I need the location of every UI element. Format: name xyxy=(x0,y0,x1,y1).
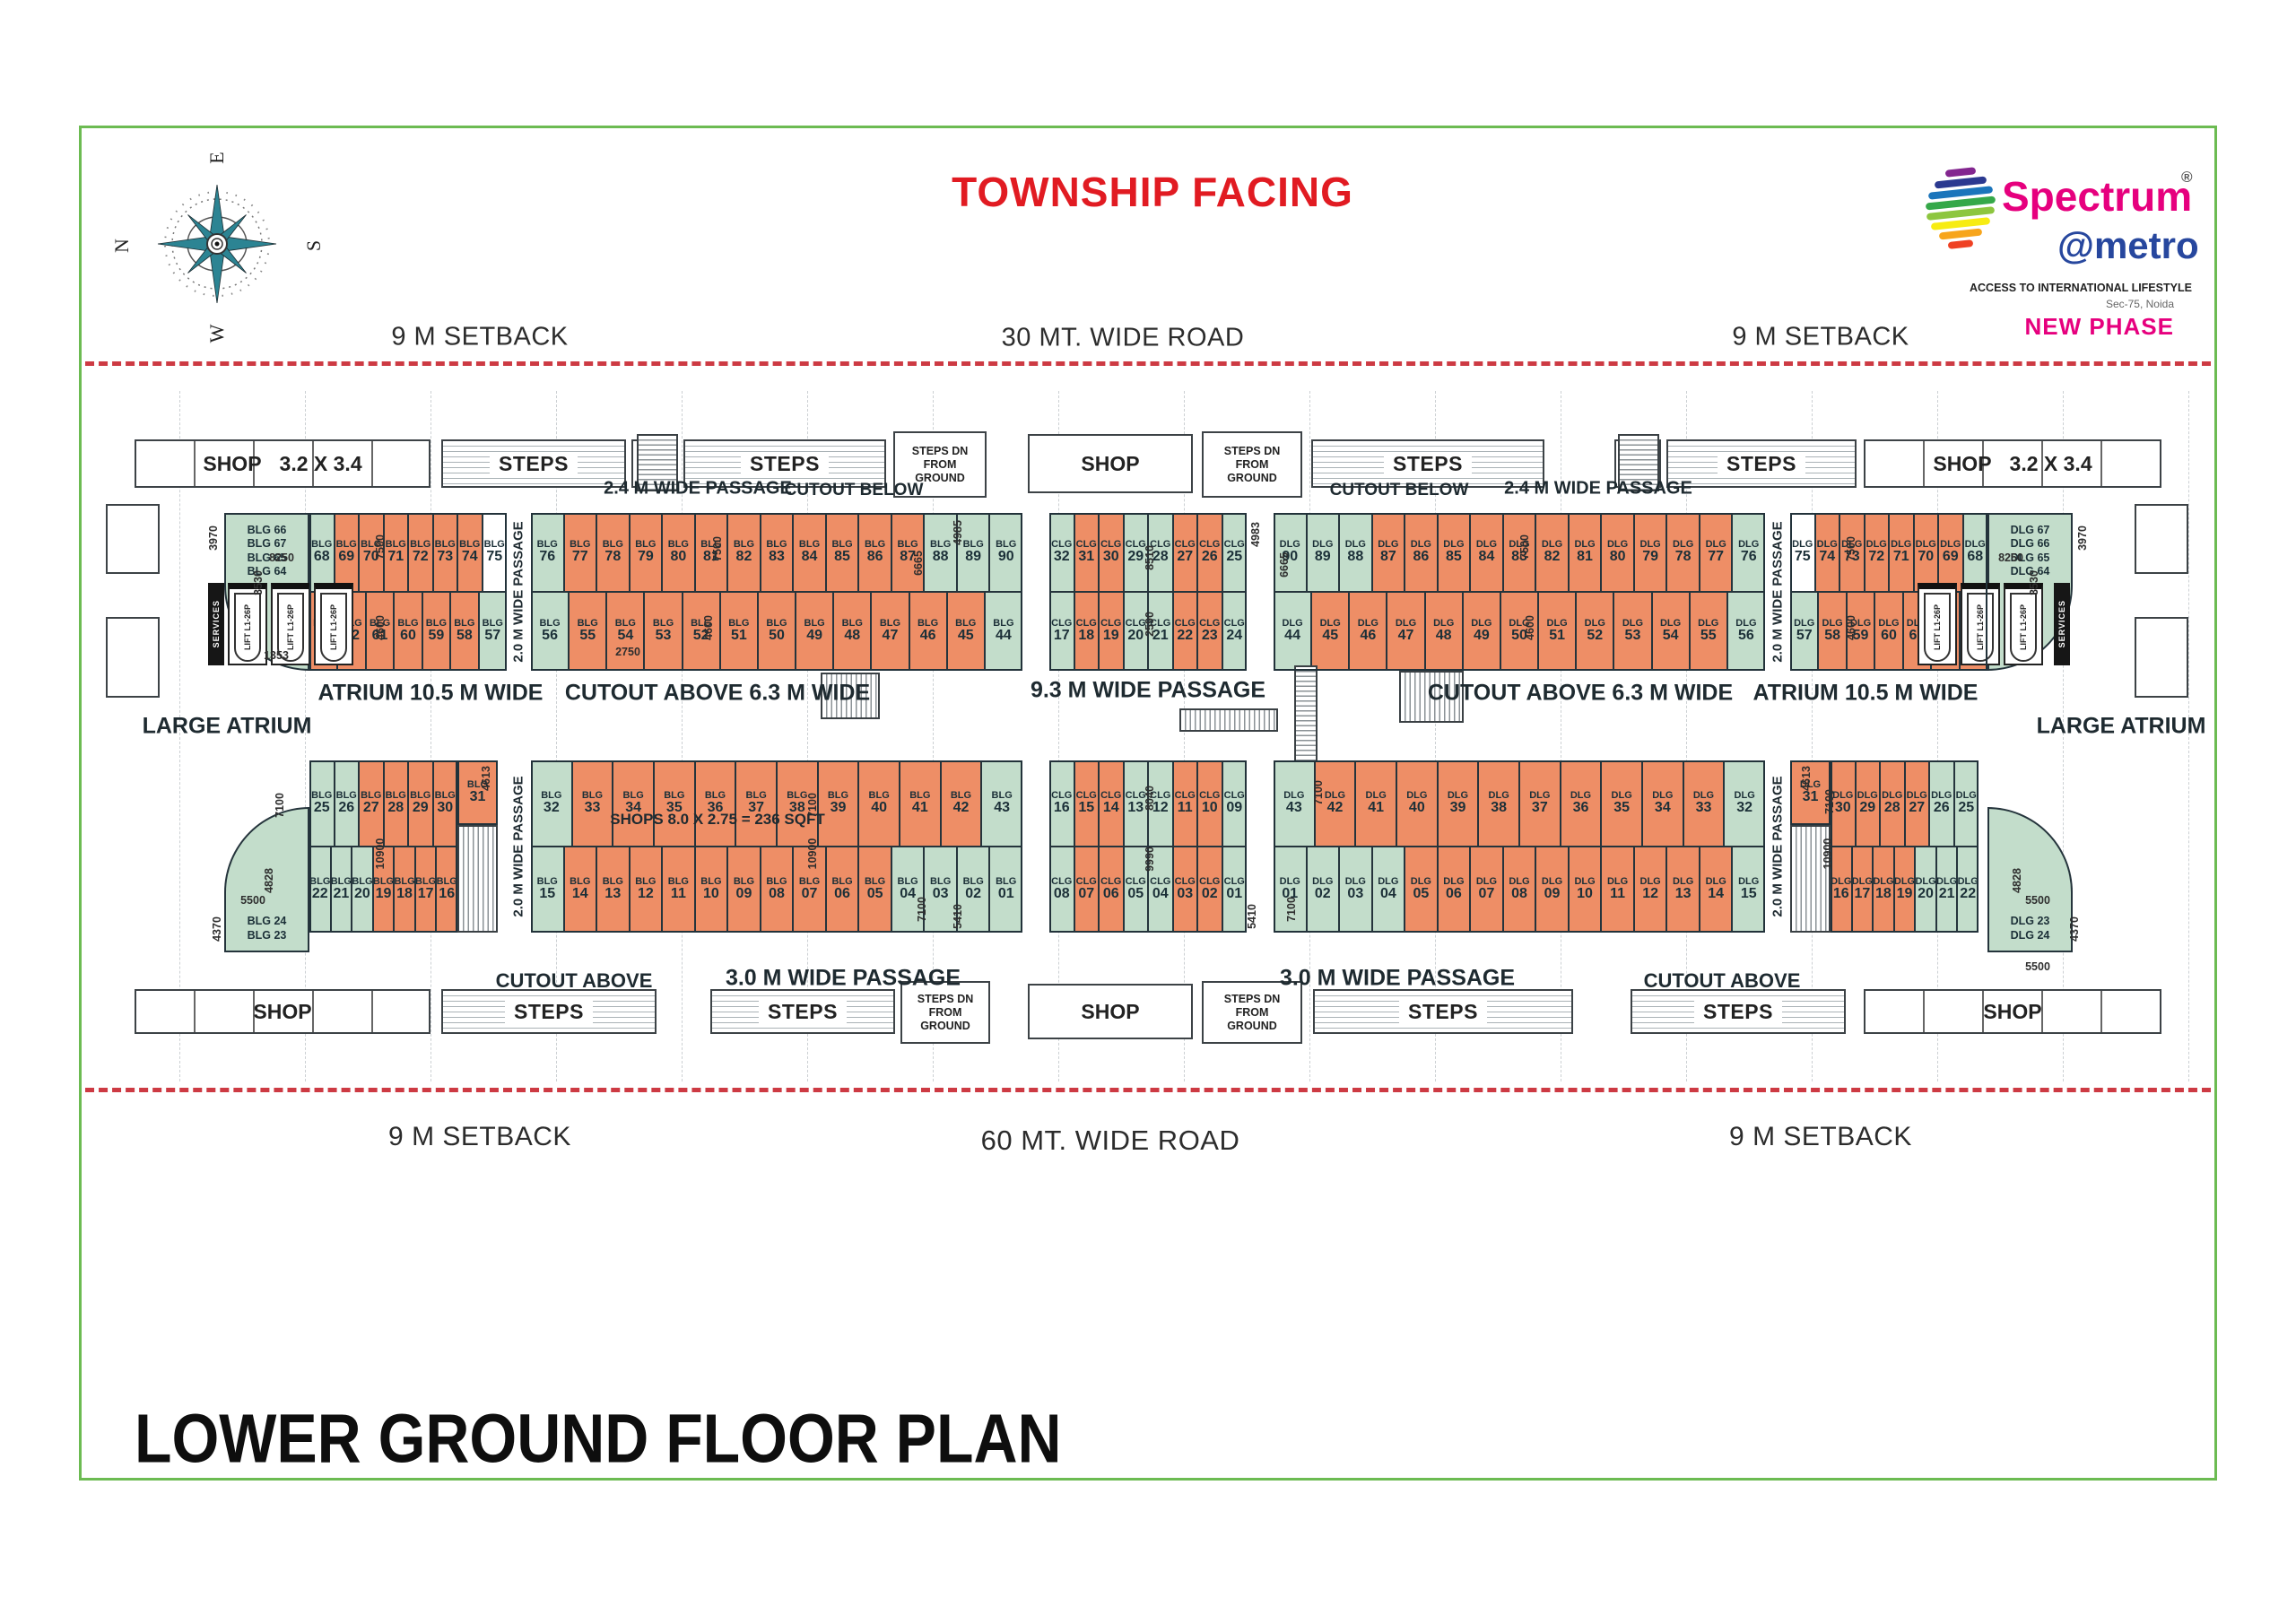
shop-unit-BLG-50: BLG50 xyxy=(758,592,796,671)
shop-unit-DLG-87: DLG87 xyxy=(1372,513,1405,592)
steps-strip: STEPS xyxy=(710,989,895,1034)
lift-icon: LIFT L1-26P xyxy=(314,583,353,665)
dimension-label: 5500 xyxy=(240,894,265,907)
plan-annotation: 3.0 M WIDE PASSAGE xyxy=(1280,966,1515,992)
shop-unit-DLG-02: DLG02 xyxy=(1307,847,1340,933)
shop-unit-DLG-17: DLG17 xyxy=(1852,847,1874,933)
setback-line-top xyxy=(85,361,2211,366)
shop-unit-BLG-34: BLG34 xyxy=(613,760,654,847)
shop-unit-center: SHOP xyxy=(1028,984,1193,1039)
shop-unit-DLG-18: DLG18 xyxy=(1873,847,1894,933)
shop-unit-BLG-51: BLG51 xyxy=(720,592,758,671)
dimension-label: 5500 xyxy=(2025,894,2050,907)
shop-unit-BLG-21: BLG21 xyxy=(331,847,352,933)
shop-unit-DLG-44: DLG44 xyxy=(1274,592,1311,671)
plan-annotation: CUTOUT ABOVE 6.3 M WIDE xyxy=(565,681,870,707)
shop-unit-CLG-22: CLG22 xyxy=(1173,592,1198,671)
shop-unit-DLG-74: DLG74 xyxy=(1815,513,1840,592)
shop-unit-BLG-11: BLG11 xyxy=(662,847,695,933)
plan-annotation: 9.3 M WIDE PASSAGE xyxy=(1031,678,1265,704)
dimension-label: 2750 xyxy=(615,646,640,658)
shop-unit-BLG-15: BLG15 xyxy=(531,847,564,933)
shop-unit-DLG-22: DLG22 xyxy=(1957,847,1979,933)
shop-unit-BLG-73: BLG73 xyxy=(433,513,458,592)
shop-unit-DLG-89: DLG89 xyxy=(1307,513,1340,592)
shop-unit-BLG-29: BLG29 xyxy=(408,760,433,847)
dimension-label: 6665 xyxy=(912,551,925,576)
logo-sub-brand-text: @metro xyxy=(2057,224,2199,267)
shop-unit-DLG-53: DLG53 xyxy=(1613,592,1651,671)
shop-unit-CLG-30: CLG30 xyxy=(1099,513,1124,592)
shop-unit-BLG-75: BLG75 xyxy=(483,513,508,592)
shop-unit-DLG-60: DLG60 xyxy=(1874,592,1902,671)
shop-unit-BLG-08: BLG08 xyxy=(761,847,794,933)
shop-unit-DLG-82: DLG82 xyxy=(1535,513,1569,592)
shop-unit-DLG-58: DLG58 xyxy=(1818,592,1846,671)
shop-unit-DLG-15: DLG15 xyxy=(1732,847,1765,933)
shop-unit-DLG-08: DLG08 xyxy=(1503,847,1536,933)
shop-unit-DLG-39: DLG39 xyxy=(1438,760,1479,847)
shop-unit-BLG-45: BLG45 xyxy=(947,592,985,671)
plan-annotation: 2.0 M WIDE PASSAGE xyxy=(1770,521,1786,662)
shop-unit-CLG-07: CLG07 xyxy=(1074,847,1100,933)
shop-unit-BLG-56: BLG56 xyxy=(531,592,569,671)
dimension-label: 6665 xyxy=(1278,552,1291,578)
shop-unit-BLG-76: BLG76 xyxy=(531,513,564,592)
shop-unit-DLG-20: DLG20 xyxy=(1915,847,1936,933)
compass-north-label: N xyxy=(110,239,134,253)
shop-unit-CLG-25: CLG25 xyxy=(1222,513,1248,592)
shop-unit-BLG-44: BLG44 xyxy=(985,592,1022,671)
shop-unit-DLG-06: DLG06 xyxy=(1438,847,1471,933)
shop-unit-DLG-47: DLG47 xyxy=(1387,592,1424,671)
logo-registered-icon: ® xyxy=(2181,169,2193,187)
shop-unit-BLG-68: BLG68 xyxy=(309,513,335,592)
logo-location: Sec-75, Noida xyxy=(1970,298,2174,310)
shop-unit-BLG-26: BLG26 xyxy=(335,760,360,847)
shop-unit-DLG-71: DLG71 xyxy=(1889,513,1914,592)
grid-line xyxy=(1812,391,1813,1081)
shop-unit-DLG-25: DLG25 xyxy=(1954,760,1979,847)
shop-unit-DLG-88: DLG88 xyxy=(1339,513,1372,592)
dimension-label: 10900 xyxy=(374,838,387,870)
shop-unit-BLG-49: BLG49 xyxy=(796,592,833,671)
shop-unit-BLG-46: BLG46 xyxy=(909,592,947,671)
shop-unit-BLG-13: BLG13 xyxy=(596,847,630,933)
shop-unit-DLG-86: DLG86 xyxy=(1405,513,1438,592)
setback-bottom-left-label: 9 M SETBACK xyxy=(388,1122,571,1152)
plan-annotation: 2.0 M WIDE PASSAGE xyxy=(511,521,526,662)
shop-unit-DLG-36: DLG36 xyxy=(1561,760,1602,847)
side-room xyxy=(106,617,160,698)
grid-line xyxy=(1058,391,1059,1081)
shop-unit-CLG-32: CLG32 xyxy=(1049,513,1074,592)
services-shaft: SERVICES xyxy=(208,583,224,665)
dimension-label: 8510 xyxy=(1144,545,1156,570)
side-room xyxy=(2135,504,2188,574)
shop-unit-DLG-77: DLG77 xyxy=(1700,513,1733,592)
lift-icon: LIFT L1-26P xyxy=(1961,583,2000,665)
shop-unit-BLG-30: BLG30 xyxy=(433,760,458,847)
plan-annotation: CUTOUT ABOVE 6.3 M WIDE xyxy=(1428,681,1733,707)
steps-strip: STEPS xyxy=(441,989,657,1034)
dimension-label: 5410 xyxy=(1246,904,1258,929)
shop-unit-BLG-59: BLG59 xyxy=(422,592,450,671)
dimension-label: 1353 xyxy=(264,649,289,662)
setback-line-bottom xyxy=(85,1088,2211,1092)
dimension-label: 4828 xyxy=(263,868,275,893)
shop-unit-BLG-28: BLG28 xyxy=(384,760,409,847)
shop-unit-DLG-46: DLG46 xyxy=(1349,592,1387,671)
shop-strip: SHOP3.2 X 3.4 xyxy=(1864,439,2161,488)
dimension-label: 4985 xyxy=(952,520,964,545)
shop-unit-DLG-27: DLG27 xyxy=(1905,760,1930,847)
shop-unit-DLG-84: DLG84 xyxy=(1470,513,1503,592)
dimension-label: 7500 xyxy=(1518,534,1531,560)
setback-bottom-right-label: 9 M SETBACK xyxy=(1729,1122,1912,1152)
setback-top-right-label: 9 M SETBACK xyxy=(1732,323,1909,352)
shop-unit-DLG-69: DLG69 xyxy=(1938,513,1963,592)
shop-unit-BLG-83: BLG83 xyxy=(761,513,794,592)
stairs-icon xyxy=(1294,665,1318,762)
dimension-label: 3530 xyxy=(252,570,265,595)
shop-unit-DLG-21: DLG21 xyxy=(1936,847,1958,933)
steps-down-box: STEPS DNFROMGROUND xyxy=(1202,431,1302,498)
shop-unit-DLG-57: DLG57 xyxy=(1790,592,1818,671)
dimension-label: 7500 xyxy=(711,536,724,561)
shop-unit-DLG-28: DLG28 xyxy=(1880,760,1905,847)
plan-annotation: LARGE ATRIUM xyxy=(143,714,312,740)
shop-unit-BLG-18: BLG18 xyxy=(394,847,415,933)
compass-rose-icon xyxy=(154,181,280,307)
dimension-label: 4828 xyxy=(2011,868,2023,893)
dimension-label: 8250 xyxy=(269,551,294,564)
shop-unit-BLG-74: BLG74 xyxy=(457,513,483,592)
shop-unit-CLG-19: CLG19 xyxy=(1099,592,1124,671)
shop-unit-DLG-13: DLG13 xyxy=(1666,847,1700,933)
shop-unit-DLG-55: DLG55 xyxy=(1690,592,1727,671)
dimension-label: 7100 xyxy=(916,897,928,922)
shop-unit-BLG-90: BLG90 xyxy=(989,513,1022,592)
shop-unit-DLG-10: DLG10 xyxy=(1569,847,1602,933)
steps-strip: STEPS xyxy=(441,439,626,488)
shop-unit-DLG-03: DLG03 xyxy=(1339,847,1372,933)
dimension-label: 4370 xyxy=(211,916,223,942)
shop-unit-BLG-43: BLG43 xyxy=(981,760,1022,847)
shop-unit-DLG-14: DLG14 xyxy=(1700,847,1733,933)
shop-strip: SHOP xyxy=(135,989,430,1034)
logo-brand-text: Spectrum xyxy=(2002,172,2192,221)
shop-unit-BLG-58: BLG58 xyxy=(450,592,478,671)
shop-unit-DLG-56: DLG56 xyxy=(1727,592,1765,671)
shop-unit-DLG-54: DLG54 xyxy=(1652,592,1690,671)
shop-unit-DLG-12: DLG12 xyxy=(1634,847,1667,933)
dimension-label: 9990 xyxy=(1144,847,1156,872)
plan-annotation: SHOPS 8.0 X 2.75 = 236 SQFT xyxy=(610,811,825,829)
shop-unit-DLG-35: DLG35 xyxy=(1601,760,1642,847)
plan-annotation: 2.4 M WIDE PASSAGE xyxy=(604,479,792,499)
shop-unit-BLG-79: BLG79 xyxy=(630,513,663,592)
shop-unit-DLG-70: DLG70 xyxy=(1914,513,1939,592)
dimension-label: 8250 xyxy=(1998,551,2023,564)
dimension-label: 4983 xyxy=(1249,522,1262,547)
shop-unit-BLG-35: BLG35 xyxy=(654,760,695,847)
shop-unit-BLG-27: BLG27 xyxy=(359,760,384,847)
services-shaft: SERVICES xyxy=(2054,583,2070,665)
shop-unit-DLG-19: DLG19 xyxy=(1894,847,1916,933)
dimension-label: 4613 xyxy=(480,766,492,791)
shop-unit-CLG-03: CLG03 xyxy=(1173,847,1198,933)
shop-unit-BLG-69: BLG69 xyxy=(335,513,360,592)
plan-annotation: CUTOUT ABOVE xyxy=(1644,969,1801,993)
shop-unit-DLG-51: DLG51 xyxy=(1538,592,1576,671)
shop-unit-BLG-72: BLG72 xyxy=(408,513,433,592)
road-bottom-label: 60 MT. WIDE ROAD xyxy=(981,1125,1240,1157)
shop-unit-DLG-52: DLG52 xyxy=(1576,592,1613,671)
shop-unit-DLG-07: DLG07 xyxy=(1470,847,1503,933)
plan-annotation: 2.4 M WIDE PASSAGE xyxy=(1504,479,1692,499)
shop-unit-BLG-33: BLG33 xyxy=(572,760,613,847)
shop-unit-BLG-85: BLG85 xyxy=(826,513,859,592)
shop-unit-DLG-80: DLG80 xyxy=(1601,513,1634,592)
shop-unit-DLG-45: DLG45 xyxy=(1311,592,1349,671)
plan-annotation: CUTOUT ABOVE xyxy=(496,969,653,993)
shop-unit-BLG-86: BLG86 xyxy=(858,513,891,592)
shop-unit-CLG-24: CLG24 xyxy=(1222,592,1248,671)
shop-unit-BLG-17: BLG17 xyxy=(415,847,437,933)
dimension-label: 3970 xyxy=(207,525,220,551)
shop-unit-BLG-16: BLG16 xyxy=(436,847,457,933)
shop-unit-BLG-14: BLG14 xyxy=(564,847,597,933)
shop-unit-BLG-05: BLG05 xyxy=(858,847,891,933)
compass-east-label: E xyxy=(205,152,229,163)
shop-unit-CLG-31: CLG31 xyxy=(1074,513,1100,592)
plan-annotation: 3.0 M WIDE PASSAGE xyxy=(726,966,961,992)
plan-annotation: CUTOUT BELOW xyxy=(1330,481,1469,500)
shop-unit-DLG-33: DLG33 xyxy=(1683,760,1725,847)
dimension-label: 10900 xyxy=(1822,838,1834,870)
shop-unit-DLG-34: DLG34 xyxy=(1642,760,1683,847)
compass-west-label: W xyxy=(205,325,229,343)
plan-annotation: 2.0 M WIDE PASSAGE xyxy=(511,776,526,916)
shop-unit-CLG-18: CLG18 xyxy=(1074,592,1100,671)
shop-unit-DLG-09: DLG09 xyxy=(1535,847,1569,933)
compass-south-label: S xyxy=(302,240,326,251)
shop-unit-BLG-42: BLG42 xyxy=(941,760,982,847)
shop-unit-CLG-08: CLG08 xyxy=(1049,847,1074,933)
shop-unit-CLG-14: CLG14 xyxy=(1099,760,1124,847)
shop-unit-CLG-27: CLG27 xyxy=(1173,513,1198,592)
dimension-label: 7500 xyxy=(374,534,387,560)
shop-unit-DLG-29: DLG29 xyxy=(1856,760,1881,847)
stairs-icon xyxy=(1179,708,1278,732)
shop-unit-CLG-26: CLG26 xyxy=(1197,513,1222,592)
shop-unit-DLG-72: DLG72 xyxy=(1865,513,1890,592)
dimension-label: 3970 xyxy=(2076,525,2089,551)
shop-strip: SHOP3.2 X 3.4 xyxy=(135,439,430,488)
road-top-label: 30 MT. WIDE ROAD xyxy=(1002,324,1245,353)
lift-icon: LIFT L1-26P xyxy=(1918,583,1957,665)
plan-annotation: LARGE ATRIUM xyxy=(2037,714,2206,740)
shop-unit-center: SHOP xyxy=(1028,434,1193,493)
shop-unit-DLG-49: DLG49 xyxy=(1463,592,1500,671)
shop-unit-DLG-79: DLG79 xyxy=(1634,513,1667,592)
side-room xyxy=(106,504,160,574)
shop-unit-DLG-43: DLG43 xyxy=(1274,760,1315,847)
plan-annotation: ATRIUM 10.5 M WIDE xyxy=(1753,681,1979,707)
shop-unit-CLG-17: CLG17 xyxy=(1049,592,1074,671)
shop-unit-BLG-32: BLG32 xyxy=(531,760,572,847)
shop-unit-CLG-02: CLG02 xyxy=(1197,847,1222,933)
shop-unit-DLG-81: DLG81 xyxy=(1569,513,1602,592)
shop-unit-BLG-80: BLG80 xyxy=(662,513,695,592)
dimension-label: 7100 xyxy=(1312,780,1325,805)
dimension-label: 4600 xyxy=(702,615,715,640)
spectrum-logo-icon xyxy=(1925,165,1996,253)
setback-top-left-label: 9 M SETBACK xyxy=(391,323,568,352)
shop-unit-CLG-09: CLG09 xyxy=(1222,760,1248,847)
shop-unit-CLG-11: CLG11 xyxy=(1173,760,1198,847)
shop-unit-BLG-77: BLG77 xyxy=(564,513,597,592)
shop-unit-BLG-37: BLG37 xyxy=(735,760,777,847)
shop-unit-DLG-26: DLG26 xyxy=(1929,760,1954,847)
shop-unit-DLG-11: DLG11 xyxy=(1601,847,1634,933)
dimension-label: 4613 xyxy=(1800,766,1813,791)
shop-unit-BLG-54: BLG54 xyxy=(606,592,644,671)
stairs-icon xyxy=(457,825,498,933)
shop-unit-DLG-04: DLG04 xyxy=(1372,847,1405,933)
dimension-label: 10900 xyxy=(806,838,819,870)
shop-unit-CLG-15: CLG15 xyxy=(1074,760,1100,847)
dimension-label: 4600 xyxy=(374,615,387,640)
shop-unit-BLG-71: BLG71 xyxy=(384,513,409,592)
dimension-label: 7100 xyxy=(1285,897,1298,922)
shop-unit-DLG-76: DLG76 xyxy=(1732,513,1765,592)
shop-unit-DLG-37: DLG37 xyxy=(1519,760,1561,847)
dimension-label: 3530 xyxy=(2028,570,2040,595)
shop-unit-BLG-36: BLG36 xyxy=(695,760,736,847)
logo-new-phase-label: NEW PHASE xyxy=(1970,313,2174,341)
plan-annotation: CUTOUT BELOW xyxy=(785,481,924,500)
steps-strip: STEPS xyxy=(1666,439,1857,488)
shop-unit-DLG-68: DLG68 xyxy=(1963,513,1988,592)
shop-unit-DLG-05: DLG05 xyxy=(1405,847,1438,933)
shop-unit-CLG-06: CLG06 xyxy=(1099,847,1124,933)
shop-unit-BLG-60: BLG60 xyxy=(394,592,422,671)
shop-unit-DLG-78: DLG78 xyxy=(1666,513,1700,592)
dimension-label: 8040 xyxy=(1144,786,1156,811)
shop-unit-BLG-41: BLG41 xyxy=(900,760,941,847)
steps-strip: STEPS xyxy=(1631,989,1846,1034)
shop-unit-BLG-25: BLG25 xyxy=(309,760,335,847)
shop-unit-CLG-01: CLG01 xyxy=(1222,847,1248,933)
dimension-label: 5410 xyxy=(952,904,964,929)
page-title: LOWER GROUND FLOOR PLAN xyxy=(135,1399,1062,1478)
shop-unit-DLG-41: DLG41 xyxy=(1355,760,1396,847)
township-facing-label: TOWNSHIP FACING xyxy=(952,168,1353,216)
shop-unit-BLG-84: BLG84 xyxy=(793,513,826,592)
dimension-label: 4370 xyxy=(2068,916,2081,942)
shop-unit-BLG-48: BLG48 xyxy=(833,592,871,671)
dimension-label: 2590 xyxy=(1144,612,1156,637)
shop-unit-CLG-10: CLG10 xyxy=(1197,760,1222,847)
shop-unit-BLG-47: BLG47 xyxy=(871,592,909,671)
shop-unit-BLG-22: BLG22 xyxy=(309,847,331,933)
shop-unit-DLG-32: DLG32 xyxy=(1724,760,1765,847)
shop-unit-BLG-39: BLG39 xyxy=(818,760,859,847)
shop-unit-BLG-01: BLG01 xyxy=(989,847,1022,933)
shop-unit-CLG-16: CLG16 xyxy=(1049,760,1074,847)
floor-plan-sheet: TOWNSHIP FACING 9 M SETBACK 30 MT. WIDE … xyxy=(0,0,2296,1624)
grid-line xyxy=(430,391,431,1081)
plan-annotation: 2.0 M WIDE PASSAGE xyxy=(1770,776,1786,916)
shop-strip: SHOP xyxy=(1864,989,2161,1034)
shop-unit-DLG-48: DLG48 xyxy=(1425,592,1463,671)
shop-unit-BLG-09: BLG09 xyxy=(727,847,761,933)
shop-unit-BLG-20: BLG20 xyxy=(352,847,373,933)
shop-unit-BLG-10: BLG10 xyxy=(695,847,728,933)
dimension-label: 5500 xyxy=(2025,960,2050,973)
shop-unit-DLG-40: DLG40 xyxy=(1396,760,1438,847)
dimension-label: 4600 xyxy=(1524,615,1536,640)
dimension-label: 7500 xyxy=(1845,536,1857,561)
grid-line xyxy=(1937,391,1938,1081)
shop-unit-BLG-53: BLG53 xyxy=(644,592,682,671)
shop-unit-BLG-06: BLG06 xyxy=(826,847,859,933)
side-room xyxy=(2135,617,2188,698)
dimension-label: 7100 xyxy=(1823,789,1836,814)
shop-unit-DLG-38: DLG38 xyxy=(1478,760,1519,847)
dimension-label: 7100 xyxy=(274,793,286,818)
shop-unit-BLG-55: BLG55 xyxy=(569,592,606,671)
shop-unit-DLG-75: DLG75 xyxy=(1790,513,1815,592)
shop-unit-CLG-23: CLG23 xyxy=(1197,592,1222,671)
grid-line xyxy=(1184,391,1185,1081)
shop-unit-BLG-40: BLG40 xyxy=(858,760,900,847)
shop-unit-BLG-82: BLG82 xyxy=(727,513,761,592)
steps-strip: STEPS xyxy=(1313,989,1573,1034)
shop-unit-BLG-12: BLG12 xyxy=(630,847,663,933)
dimension-label: 4600 xyxy=(1845,615,1857,640)
shop-unit-BLG-78: BLG78 xyxy=(596,513,630,592)
shop-unit-DLG-85: DLG85 xyxy=(1438,513,1471,592)
logo-tagline: ACCESS TO INTERNATIONAL LIFESTYLE xyxy=(1970,282,2174,294)
plan-annotation: ATRIUM 10.5 M WIDE xyxy=(318,681,544,707)
shop-unit-BLG-57: BLG57 xyxy=(479,592,507,671)
